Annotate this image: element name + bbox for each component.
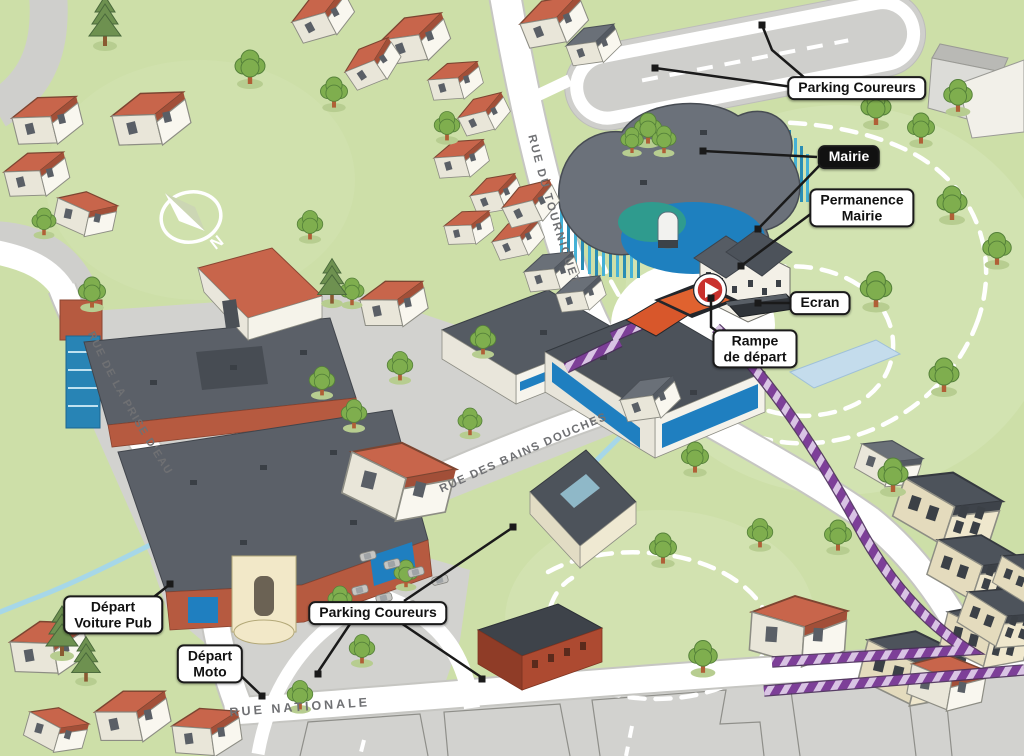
callout-depart-voiture-pub: Départ Voiture Pub xyxy=(63,595,163,634)
callout-parking-coureurs-top: Parking Coureurs xyxy=(787,76,926,100)
callout-parking-coureurs-bottom: Parking Coureurs xyxy=(308,601,447,625)
callout-depart-moto: Départ Moto xyxy=(177,644,243,683)
event-map: N RUE DU TOURNIQUET RUE DES BAINS DOUCHE… xyxy=(0,0,1024,756)
callout-rampe-de-depart: Rampe de départ xyxy=(712,329,797,368)
callout-ecran: Ecran xyxy=(790,291,851,315)
callout-permanence-mairie: Permanence Mairie xyxy=(809,188,914,227)
callout-mairie: Mairie xyxy=(818,145,880,169)
map-canvas: N RUE DU TOURNIQUET RUE DES BAINS DOUCHE… xyxy=(0,0,1024,756)
